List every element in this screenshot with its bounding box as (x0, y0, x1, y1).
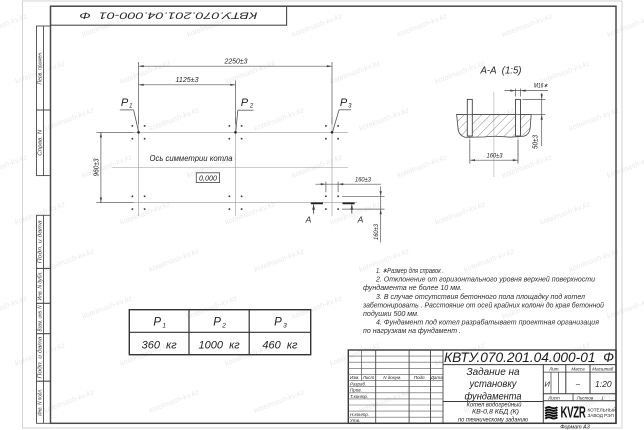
svg-text:KVZR: KVZR (561, 405, 587, 422)
svg-text:Ось симметрии котла: Ось симметрии котла (150, 154, 234, 163)
svg-text:фундамента: фундамента (465, 390, 522, 402)
svg-text:Т.контр.: Т.контр. (350, 394, 368, 399)
svg-text:Подп.: Подп. (414, 375, 426, 380)
svg-text:360 кг: 360 кг (142, 340, 178, 352)
svg-text:установку: установку (469, 378, 518, 390)
svg-text:1: 1 (129, 103, 132, 109)
svg-text:160±3: 160±3 (355, 177, 371, 184)
svg-text:1: 1 (162, 323, 166, 330)
svg-text:Формат А3: Формат А3 (560, 425, 590, 430)
svg-text:А: А (305, 215, 312, 225)
svg-text:Н.контр.: Н.контр. (350, 412, 369, 417)
svg-text:Справ. N: Справ. N (38, 129, 44, 155)
svg-text:P: P (241, 97, 249, 109)
svg-text:1125±3: 1125±3 (176, 77, 199, 84)
svg-text:КОТЕЛЬНЫЙ: КОТЕЛЬНЫЙ (588, 405, 617, 412)
svg-text:И: И (545, 380, 551, 389)
svg-text:Изм.: Изм. (350, 375, 360, 380)
svg-text:P: P (274, 317, 282, 329)
svg-text:P: P (340, 97, 348, 109)
svg-text:Лит.: Лит. (548, 366, 560, 371)
svg-text:Лист: Лист (547, 395, 560, 400)
svg-text:Масса: Масса (571, 366, 585, 371)
svg-text:Подп. и дата: Подп. и дата (38, 220, 44, 263)
svg-text:Разраб.: Разраб. (350, 382, 366, 387)
svg-text:Пров.: Пров. (350, 388, 362, 393)
svg-text:2: 2 (249, 103, 254, 109)
svg-text:КВ-0,8 КБД (К): КВ-0,8 КБД (К) (472, 410, 519, 416)
svg-text:160±3: 160±3 (373, 224, 380, 240)
svg-text:Задание на: Задание на (467, 366, 520, 378)
svg-text:1:20: 1:20 (595, 379, 612, 389)
svg-text:КВТУ.070.201.04.000-01 Ф: КВТУ.070.201.04.000-01 Ф (79, 10, 258, 21)
svg-text:КВТУ.070.201.04.000-01 Ф: КВТУ.070.201.04.000-01 Ф (444, 350, 614, 365)
svg-text:по техническому заданию: по техническому заданию (458, 418, 528, 424)
svg-text:Инв. N подл.: Инв. N подл. (38, 389, 44, 416)
svg-text:Перв. примен.: Перв. примен. (38, 52, 44, 85)
svg-text:Дата: Дата (430, 375, 443, 380)
svg-text:2: 2 (221, 323, 226, 330)
svg-text:Инв. N дубл.: Инв. N дубл. (38, 271, 44, 300)
svg-text:А-А (1:5): А-А (1:5) (480, 65, 522, 77)
svg-text:Лист: Лист (362, 375, 375, 380)
svg-text:по нагрузкам на фундамент .: по нагрузкам на фундамент . (363, 326, 461, 335)
svg-text:–: – (575, 379, 581, 388)
svg-text:50±3: 50±3 (533, 135, 540, 149)
svg-text:Взам. инв. N: Взам. инв. N (38, 305, 44, 331)
svg-text:А: А (357, 215, 364, 225)
svg-text:P: P (153, 317, 161, 329)
svg-text:Подп. и дата: Подп. и дата (38, 336, 44, 378)
svg-text:3: 3 (283, 323, 287, 330)
svg-text:0,000: 0,000 (199, 173, 217, 182)
svg-text:P: P (213, 317, 221, 329)
svg-text:160±3: 160±3 (487, 153, 503, 160)
svg-text:2250±3: 2250±3 (224, 59, 248, 66)
svg-text:Утв.: Утв. (350, 418, 360, 423)
svg-text:ЗАВОД РЭП: ЗАВОД РЭП (588, 413, 614, 418)
svg-text:N докум.: N докум. (383, 375, 401, 380)
svg-text:Масштаб: Масштаб (592, 366, 613, 371)
svg-text:Котел водогрейный: Котел водогрейный (467, 401, 523, 408)
svg-text:Листов: Листов (576, 395, 594, 400)
svg-text:960±3: 960±3 (94, 158, 101, 176)
svg-text:460 кг: 460 кг (262, 340, 298, 352)
svg-text:М16∗: М16∗ (534, 82, 548, 89)
svg-text:1000 кг: 1000 кг (198, 340, 240, 352)
svg-text:P: P (121, 97, 129, 109)
